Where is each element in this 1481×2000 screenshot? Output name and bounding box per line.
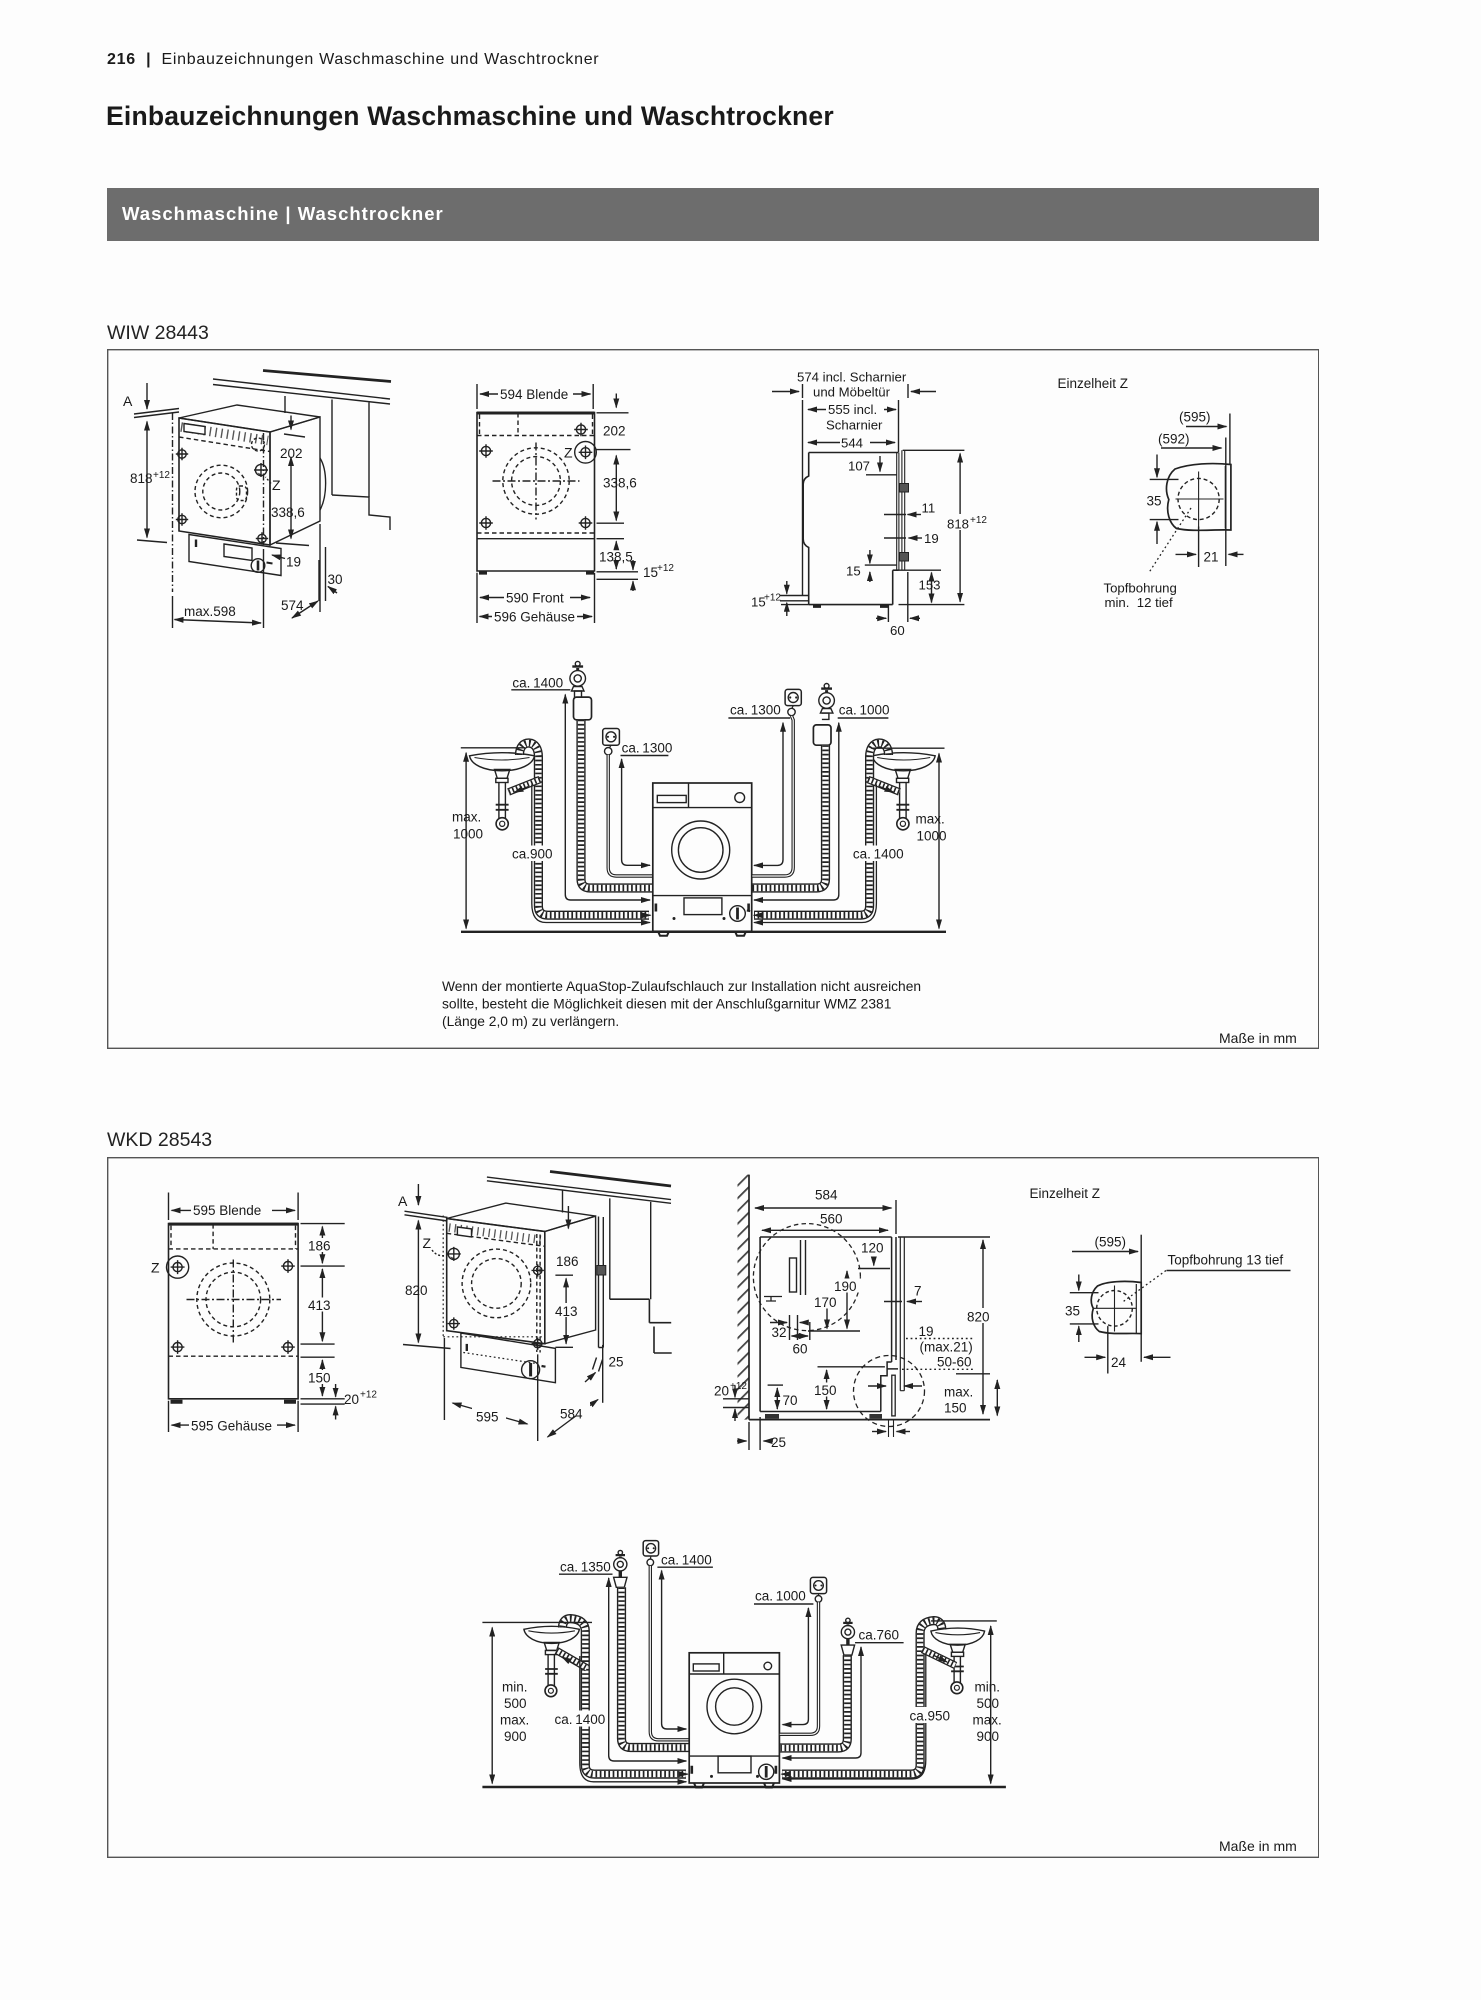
svg-text:ca. 1000: ca. 1000 xyxy=(839,703,890,718)
svg-text:max.: max. xyxy=(452,810,481,825)
svg-text:15: 15 xyxy=(643,565,658,580)
svg-text:ca. 1300: ca. 1300 xyxy=(622,741,673,756)
svg-text:ca.950: ca.950 xyxy=(910,1709,951,1724)
svg-text:+12: +12 xyxy=(970,515,987,526)
svg-text:+12: +12 xyxy=(153,470,170,481)
svg-text:max.: max. xyxy=(973,1713,1002,1728)
svg-text:107: 107 xyxy=(848,459,870,474)
svg-text:Maße in mm: Maße in mm xyxy=(1219,1838,1297,1854)
svg-text:+12: +12 xyxy=(360,1390,377,1401)
svg-text:Topfbohrung: Topfbohrung xyxy=(1104,581,1177,596)
svg-text:338,6: 338,6 xyxy=(603,476,637,491)
svg-text:Maße in mm: Maße in mm xyxy=(1219,1030,1297,1046)
svg-text:595 Gehäuse: 595 Gehäuse xyxy=(191,1418,272,1433)
svg-text:413: 413 xyxy=(308,1298,331,1313)
svg-text:min. 12 tief: min. 12 tief xyxy=(1105,595,1174,610)
svg-text:min.: min. xyxy=(502,1680,528,1695)
svg-text:202: 202 xyxy=(603,424,626,439)
svg-text:560: 560 xyxy=(820,1212,843,1227)
svg-text:594 Blende: 594 Blende xyxy=(500,387,568,402)
svg-text:1000: 1000 xyxy=(917,829,947,844)
svg-text:50-60: 50-60 xyxy=(937,1355,972,1370)
svg-text:(592): (592) xyxy=(1158,432,1190,447)
svg-text:60: 60 xyxy=(890,623,905,638)
svg-text:820: 820 xyxy=(405,1283,428,1298)
svg-text:7: 7 xyxy=(914,1284,922,1299)
svg-text:413: 413 xyxy=(555,1304,578,1319)
svg-text:Z: Z xyxy=(423,1235,432,1251)
svg-text:(595): (595) xyxy=(1095,1235,1127,1250)
svg-text:338,6: 338,6 xyxy=(271,505,305,520)
svg-text:11: 11 xyxy=(922,501,936,516)
svg-text:186: 186 xyxy=(556,1254,579,1269)
svg-text:Wenn der montierte AquaStop-Zu: Wenn der montierte AquaStop-Zulaufschlau… xyxy=(442,979,921,994)
svg-text:30: 30 xyxy=(328,572,343,587)
svg-text:19: 19 xyxy=(924,531,939,546)
svg-text:+12: +12 xyxy=(730,1381,747,1392)
svg-text:21: 21 xyxy=(1204,550,1219,565)
svg-text:574 incl. Scharnier: 574 incl. Scharnier xyxy=(797,370,907,385)
svg-text:Einzelheit Z: Einzelheit Z xyxy=(1058,376,1129,391)
svg-text:1000: 1000 xyxy=(453,827,483,842)
svg-text:ca. 1300: ca. 1300 xyxy=(730,703,781,718)
svg-text:190: 190 xyxy=(834,1279,857,1294)
svg-text:900: 900 xyxy=(504,1729,527,1744)
svg-text:min.: min. xyxy=(975,1680,1001,1695)
svg-text:Scharnier: Scharnier xyxy=(826,418,883,433)
svg-text:818: 818 xyxy=(947,517,969,532)
svg-text:70: 70 xyxy=(783,1393,798,1408)
svg-text:sollte, besteht die Möglichkei: sollte, besteht die Möglichkeit diesen m… xyxy=(442,997,891,1012)
svg-text:Topfbohrung 13 tief: Topfbohrung 13 tief xyxy=(1168,1253,1284,1268)
svg-text:+12: +12 xyxy=(657,563,674,574)
svg-text:max.598: max.598 xyxy=(184,604,236,619)
svg-text:(max.21): (max.21) xyxy=(920,1340,973,1355)
svg-text:574: 574 xyxy=(281,598,304,613)
svg-text:15: 15 xyxy=(846,564,861,579)
svg-text:+12: +12 xyxy=(764,593,781,604)
svg-text:ca.900: ca.900 xyxy=(512,847,553,862)
svg-text:25: 25 xyxy=(771,1435,786,1450)
svg-text:max.: max. xyxy=(944,1385,973,1400)
svg-text:138,5: 138,5 xyxy=(599,550,633,565)
svg-text:24: 24 xyxy=(1111,1355,1127,1370)
svg-text:500: 500 xyxy=(504,1696,527,1711)
svg-text:35: 35 xyxy=(1065,1304,1080,1319)
svg-text:20: 20 xyxy=(344,1392,359,1407)
svg-text:A: A xyxy=(398,1193,408,1209)
svg-text:ca. 1400: ca. 1400 xyxy=(512,676,563,691)
svg-text:170: 170 xyxy=(814,1295,837,1310)
svg-text:A: A xyxy=(123,393,133,409)
svg-text:900: 900 xyxy=(977,1729,1000,1744)
svg-text:35: 35 xyxy=(1147,494,1162,509)
svg-text:584: 584 xyxy=(815,1188,838,1203)
svg-text:500: 500 xyxy=(977,1696,1000,1711)
svg-text:ca. 1000: ca. 1000 xyxy=(755,1589,806,1604)
svg-text:max.: max. xyxy=(500,1713,529,1728)
svg-text:ca. 1400: ca. 1400 xyxy=(661,1553,712,1568)
svg-text:ca. 1350: ca. 1350 xyxy=(560,1560,611,1575)
svg-text:150: 150 xyxy=(944,1401,967,1416)
svg-text:150: 150 xyxy=(814,1383,837,1398)
svg-text:ca. 1400: ca. 1400 xyxy=(555,1712,606,1727)
svg-text:Z: Z xyxy=(564,445,573,461)
svg-text:ca.760: ca.760 xyxy=(859,1628,900,1643)
svg-text:818: 818 xyxy=(130,471,153,486)
svg-text:186: 186 xyxy=(308,1239,331,1254)
svg-text:und Möbeltür: und Möbeltür xyxy=(813,385,891,400)
svg-text:max.: max. xyxy=(916,812,945,827)
svg-text:595 Blende: 595 Blende xyxy=(193,1203,261,1218)
svg-text:590 Front: 590 Front xyxy=(506,590,564,605)
svg-text:Z: Z xyxy=(151,1260,160,1276)
svg-text:153: 153 xyxy=(919,578,941,593)
svg-text:60: 60 xyxy=(793,1342,808,1357)
svg-text:120: 120 xyxy=(861,1241,884,1256)
svg-text:544: 544 xyxy=(841,436,863,451)
svg-text:Z: Z xyxy=(272,477,281,493)
svg-text:555 incl.: 555 incl. xyxy=(828,402,877,417)
svg-text:19: 19 xyxy=(286,555,301,570)
svg-text:20: 20 xyxy=(714,1384,729,1399)
svg-text:19: 19 xyxy=(919,1324,934,1339)
svg-text:32: 32 xyxy=(772,1325,787,1340)
svg-text:Einzelheit Z: Einzelheit Z xyxy=(1030,1186,1101,1201)
svg-text:(Länge 2,0 m) zu verlängern.: (Länge 2,0 m) zu verlängern. xyxy=(442,1014,619,1029)
svg-text:584: 584 xyxy=(560,1407,583,1422)
svg-text:(595): (595) xyxy=(1179,410,1211,425)
svg-text:ca. 1400: ca. 1400 xyxy=(853,847,904,862)
svg-text:596 Gehäuse: 596 Gehäuse xyxy=(494,609,575,624)
svg-text:595: 595 xyxy=(476,1410,499,1425)
svg-text:150: 150 xyxy=(308,1371,331,1386)
svg-text:25: 25 xyxy=(609,1355,624,1370)
svg-text:820: 820 xyxy=(967,1310,990,1325)
